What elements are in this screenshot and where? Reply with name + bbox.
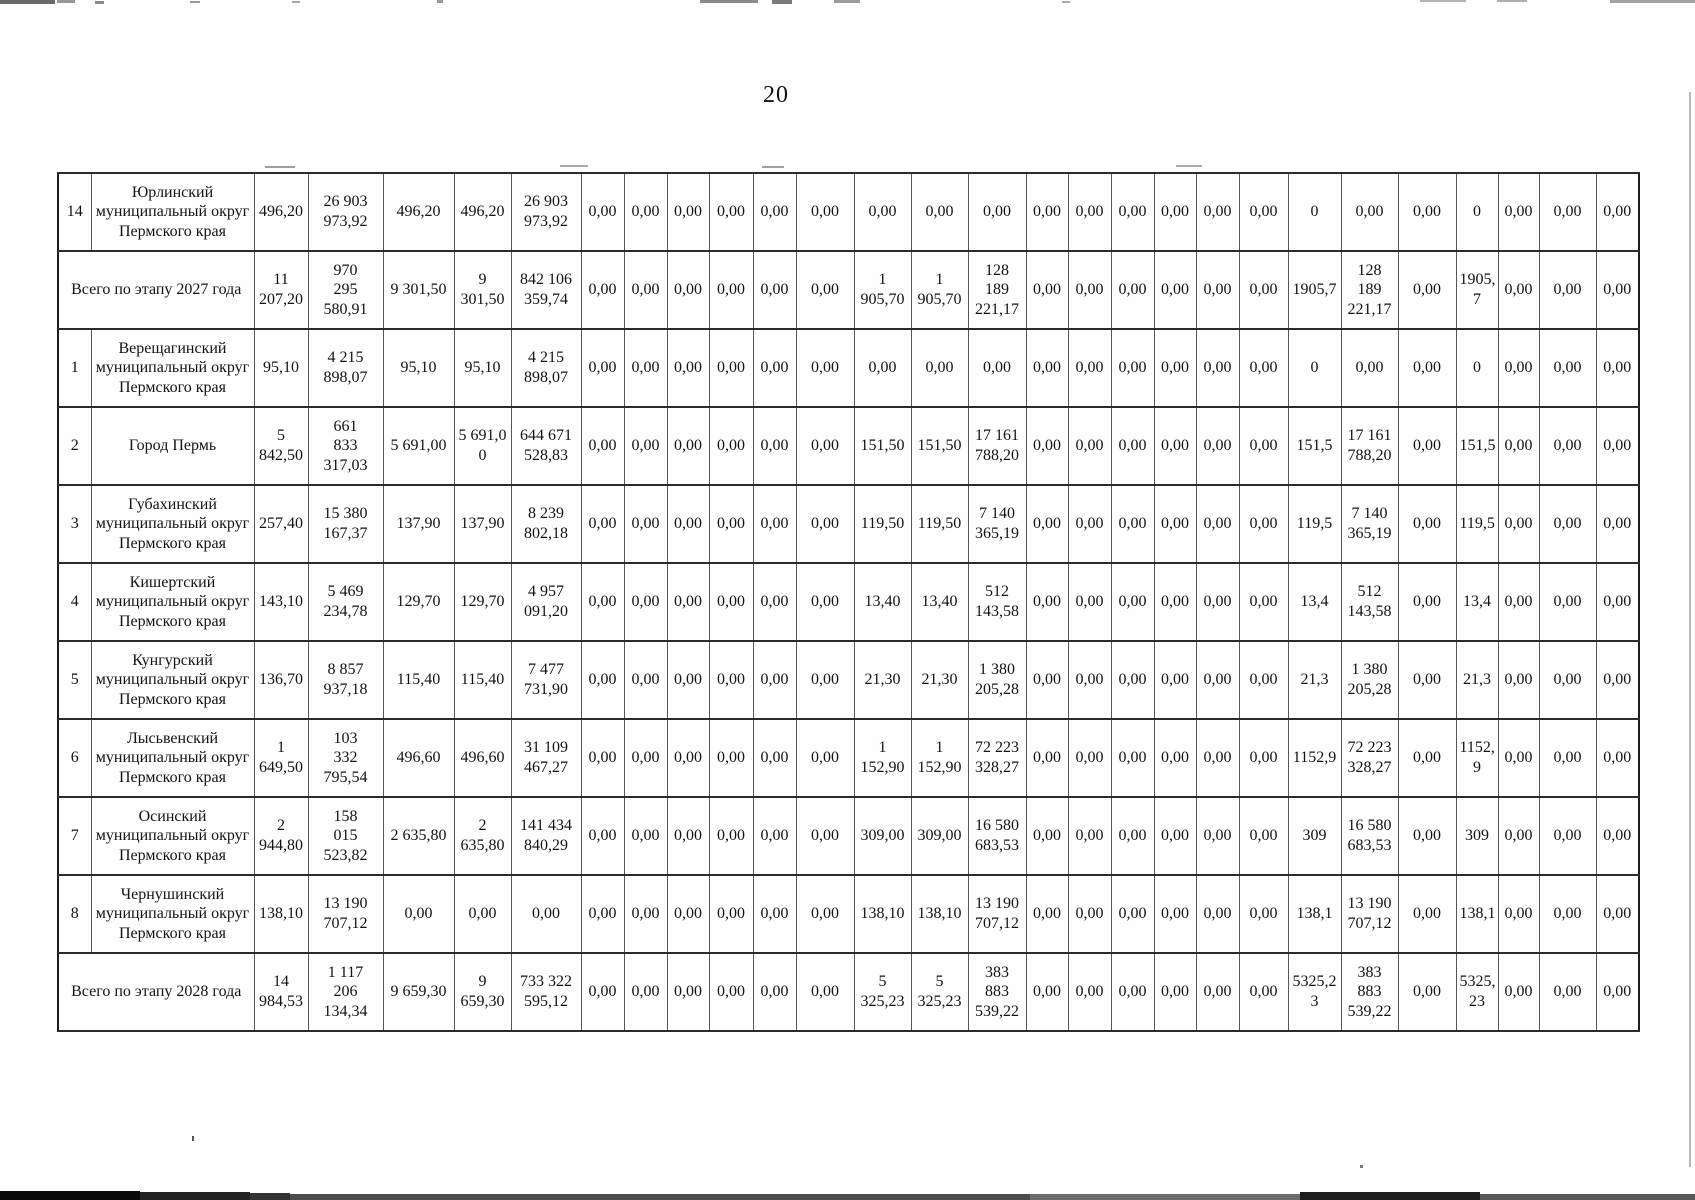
- value-cell: 11 207,20: [254, 251, 308, 329]
- value-cell: 128 189 221,17: [968, 251, 1026, 329]
- table-row: 4Кишертский муниципальный округ Пермског…: [58, 563, 1639, 641]
- value-cell: 0,00: [667, 953, 709, 1031]
- value-cell: 119,50: [854, 485, 911, 563]
- scan-artifact: [560, 165, 588, 167]
- value-cell: 309: [1288, 797, 1341, 875]
- scan-artifact: [57, 0, 75, 3]
- value-cell: 138,1: [1288, 875, 1341, 953]
- value-cell: 0,00: [709, 251, 753, 329]
- value-cell: 0,00: [1498, 485, 1539, 563]
- value-cell: 512 143,58: [968, 563, 1026, 641]
- scan-artifact: [192, 1136, 194, 1141]
- value-cell: 0,00: [709, 953, 753, 1031]
- scan-artifact: [250, 1193, 290, 1200]
- value-cell: 0,00: [1111, 251, 1154, 329]
- value-cell: 0,00: [1596, 641, 1639, 719]
- value-cell: 0,00: [1196, 329, 1239, 407]
- value-cell: 0,00: [624, 797, 667, 875]
- value-cell: 151,5: [1456, 407, 1498, 485]
- scan-artifact: [1610, 0, 1695, 3]
- table-row: 1Верещагинский муниципальный округ Пермс…: [58, 329, 1639, 407]
- value-cell: 0,00: [1498, 797, 1539, 875]
- value-cell: 0,00: [1498, 407, 1539, 485]
- value-cell: 0,00: [709, 641, 753, 719]
- scan-artifact: [1300, 1192, 1480, 1200]
- value-cell: 0,00: [581, 407, 624, 485]
- value-cell: 0,00: [796, 407, 854, 485]
- value-cell: 0,00: [753, 329, 796, 407]
- scan-artifact: [1062, 1, 1070, 3]
- scan-artifact: [1030, 1194, 1300, 1200]
- data-table: 14Юрлинский муниципальный округ Пермског…: [57, 172, 1640, 1032]
- value-cell: 0,00: [1596, 173, 1639, 251]
- value-cell: 0,00: [854, 173, 911, 251]
- value-cell: 0,00: [511, 875, 581, 953]
- value-cell: 0,00: [667, 329, 709, 407]
- value-cell: 0,00: [1068, 563, 1111, 641]
- value-cell: 309: [1456, 797, 1498, 875]
- value-cell: 13,40: [854, 563, 911, 641]
- value-cell: 0,00: [1154, 641, 1196, 719]
- value-cell: 496,60: [454, 719, 511, 797]
- value-cell: 138,10: [854, 875, 911, 953]
- value-cell: 0,00: [1068, 173, 1111, 251]
- value-cell: 0,00: [624, 173, 667, 251]
- value-cell: 0,00: [1239, 407, 1288, 485]
- value-cell: 0,00: [1196, 797, 1239, 875]
- value-cell: 1905,7: [1288, 251, 1341, 329]
- value-cell: 0,00: [1026, 953, 1068, 1031]
- value-cell: 0: [1456, 329, 1498, 407]
- value-cell: 0,00: [1596, 407, 1639, 485]
- value-cell: 0,00: [1196, 485, 1239, 563]
- value-cell: 0,00: [1068, 641, 1111, 719]
- value-cell: 0,00: [1398, 719, 1456, 797]
- value-cell: 13,4: [1288, 563, 1341, 641]
- value-cell: 95,10: [254, 329, 308, 407]
- value-cell: 0,00: [1239, 875, 1288, 953]
- value-cell: 0,00: [1539, 173, 1596, 251]
- total-label: Всего по этапу 2028 года: [58, 953, 254, 1031]
- page-number: 20: [763, 82, 789, 109]
- value-cell: 0,00: [624, 719, 667, 797]
- value-cell: 0,00: [1398, 563, 1456, 641]
- value-cell: 0,00: [1498, 563, 1539, 641]
- value-cell: 13,40: [911, 563, 968, 641]
- value-cell: 0,00: [1196, 407, 1239, 485]
- value-cell: 0,00: [581, 173, 624, 251]
- value-cell: 0,00: [1239, 251, 1288, 329]
- value-cell: 0,00: [1026, 875, 1068, 953]
- municipality-name: Город Пермь: [91, 407, 254, 485]
- scan-artifact: [290, 1194, 1030, 1200]
- value-cell: 0,00: [796, 953, 854, 1031]
- value-cell: 0,00: [1596, 251, 1639, 329]
- value-cell: 2 944,80: [254, 797, 308, 875]
- table-row: 7Осинский муниципальный округ Пермского …: [58, 797, 1639, 875]
- value-cell: 0,00: [624, 953, 667, 1031]
- value-cell: 143,10: [254, 563, 308, 641]
- value-cell: 0,00: [1539, 407, 1596, 485]
- value-cell: 0,00: [581, 329, 624, 407]
- value-cell: 95,10: [383, 329, 454, 407]
- scanned-page: 20 14Юрлинский муниципальный округ Пермс…: [0, 0, 1695, 1200]
- value-cell: 0,00: [753, 251, 796, 329]
- value-cell: 0,00: [1498, 251, 1539, 329]
- value-cell: 0,00: [796, 563, 854, 641]
- value-cell: 95,10: [454, 329, 511, 407]
- value-cell: 0,00: [1111, 719, 1154, 797]
- value-cell: 0,00: [581, 251, 624, 329]
- value-cell: 0,00: [1154, 407, 1196, 485]
- value-cell: 0,00: [1154, 251, 1196, 329]
- value-cell: 0,00: [624, 641, 667, 719]
- value-cell: 1 649,50: [254, 719, 308, 797]
- value-cell: 1 380 205,28: [1341, 641, 1398, 719]
- value-cell: 0,00: [796, 719, 854, 797]
- value-cell: 0,00: [1539, 329, 1596, 407]
- value-cell: 0,00: [1498, 953, 1539, 1031]
- value-cell: 14 984,53: [254, 953, 308, 1031]
- value-cell: 0,00: [1539, 797, 1596, 875]
- value-cell: 9 659,30: [383, 953, 454, 1031]
- row-number: 2: [58, 407, 91, 485]
- value-cell: 119,5: [1288, 485, 1341, 563]
- value-cell: 0,00: [667, 641, 709, 719]
- value-cell: 0,00: [667, 407, 709, 485]
- value-cell: 0,00: [796, 641, 854, 719]
- value-cell: 0,00: [1154, 173, 1196, 251]
- value-cell: 0,00: [1068, 407, 1111, 485]
- value-cell: 0,00: [581, 719, 624, 797]
- value-cell: 0,00: [454, 875, 511, 953]
- value-cell: 9 301,50: [454, 251, 511, 329]
- value-cell: 15 380 167,37: [308, 485, 383, 563]
- value-cell: 0,00: [753, 173, 796, 251]
- scan-artifact: [190, 1, 200, 3]
- value-cell: 0,00: [1196, 173, 1239, 251]
- value-cell: 0,00: [1196, 953, 1239, 1031]
- total-row: Всего по этапу 2028 года14 984,531 117 2…: [58, 953, 1639, 1031]
- table-row: 6Лысьвенский муниципальный округ Пермско…: [58, 719, 1639, 797]
- value-cell: 4 215 898,07: [308, 329, 383, 407]
- value-cell: 0,00: [753, 719, 796, 797]
- value-cell: 309,00: [911, 797, 968, 875]
- value-cell: 5 325,23: [911, 953, 968, 1031]
- value-cell: 0,00: [1398, 953, 1456, 1031]
- value-cell: 0,00: [1111, 953, 1154, 1031]
- value-cell: 257,40: [254, 485, 308, 563]
- value-cell: 1 117 206 134,34: [308, 953, 383, 1031]
- scan-artifact: [1497, 0, 1527, 2]
- value-cell: 0,00: [1196, 719, 1239, 797]
- value-cell: 0,00: [1026, 251, 1068, 329]
- value-cell: 0,00: [1539, 641, 1596, 719]
- value-cell: 0,00: [1239, 563, 1288, 641]
- table-row: 2Город Пермь5 842,50661 833 317,035 691,…: [58, 407, 1639, 485]
- value-cell: 0,00: [1398, 641, 1456, 719]
- municipality-name: Верещагинский муниципальный округ Пермск…: [91, 329, 254, 407]
- value-cell: 0,00: [1026, 719, 1068, 797]
- value-cell: 0,00: [1539, 485, 1596, 563]
- value-cell: 13 190 707,12: [968, 875, 1026, 953]
- value-cell: 5 691,00: [383, 407, 454, 485]
- value-cell: 0,00: [1196, 563, 1239, 641]
- value-cell: 0,00: [1068, 719, 1111, 797]
- value-cell: 0,00: [753, 641, 796, 719]
- value-cell: 0,00: [1154, 797, 1196, 875]
- value-cell: 0,00: [1068, 797, 1111, 875]
- value-cell: 5 842,50: [254, 407, 308, 485]
- value-cell: 5325,2 3: [1288, 953, 1341, 1031]
- scan-artifact: [762, 166, 784, 168]
- value-cell: 496,20: [254, 173, 308, 251]
- value-cell: 7 477 731,90: [511, 641, 581, 719]
- row-number: 5: [58, 641, 91, 719]
- value-cell: 0,00: [1498, 875, 1539, 953]
- value-cell: 0,00: [1111, 641, 1154, 719]
- value-cell: 0,00: [1239, 485, 1288, 563]
- value-cell: 0,00: [753, 563, 796, 641]
- value-cell: 9 301,50: [383, 251, 454, 329]
- value-cell: 9 659,30: [454, 953, 511, 1031]
- value-cell: 0,00: [1596, 329, 1639, 407]
- value-cell: 0,00: [667, 563, 709, 641]
- value-cell: 8 857 937,18: [308, 641, 383, 719]
- total-row: Всего по этапу 2027 года11 207,20970 295…: [58, 251, 1639, 329]
- value-cell: 0,00: [854, 329, 911, 407]
- table-row: 3Губахинский муниципальный округ Пермско…: [58, 485, 1639, 563]
- value-cell: 0,00: [1596, 875, 1639, 953]
- value-cell: 1 152,90: [911, 719, 968, 797]
- value-cell: 0,00: [1596, 953, 1639, 1031]
- value-cell: 0,00: [667, 875, 709, 953]
- value-cell: 0,00: [753, 485, 796, 563]
- value-cell: 383 883 539,22: [968, 953, 1026, 1031]
- value-cell: 0,00: [1398, 173, 1456, 251]
- scan-artifact: [0, 0, 55, 4]
- value-cell: 0,00: [1539, 563, 1596, 641]
- value-cell: 0,00: [1154, 875, 1196, 953]
- value-cell: 21,3: [1456, 641, 1498, 719]
- value-cell: 0,00: [667, 719, 709, 797]
- value-cell: 128 189 221,17: [1341, 251, 1398, 329]
- value-cell: 72 223 328,27: [968, 719, 1026, 797]
- value-cell: 119,50: [911, 485, 968, 563]
- row-number: 7: [58, 797, 91, 875]
- scan-artifact: [292, 1, 300, 3]
- value-cell: 1 152,90: [854, 719, 911, 797]
- value-cell: 0,00: [1398, 251, 1456, 329]
- value-cell: 0,00: [709, 875, 753, 953]
- value-cell: 0,00: [1539, 251, 1596, 329]
- value-cell: 4 215 898,07: [511, 329, 581, 407]
- value-cell: 0,00: [1154, 485, 1196, 563]
- value-cell: 0,00: [1068, 485, 1111, 563]
- row-number: 3: [58, 485, 91, 563]
- value-cell: 0,00: [911, 173, 968, 251]
- value-cell: 496,20: [383, 173, 454, 251]
- value-cell: 1 905,70: [911, 251, 968, 329]
- value-cell: 0,00: [753, 953, 796, 1031]
- scan-artifact: [700, 0, 758, 3]
- value-cell: 0,00: [1539, 875, 1596, 953]
- value-cell: 0,00: [1111, 407, 1154, 485]
- value-cell: 0,00: [1026, 407, 1068, 485]
- value-cell: 72 223 328,27: [1341, 719, 1398, 797]
- value-cell: 0,00: [1068, 875, 1111, 953]
- scan-artifact: [0, 1191, 140, 1200]
- scan-artifact: [772, 0, 792, 4]
- value-cell: 0: [1288, 173, 1341, 251]
- municipality-name: Губахинский муниципальный округ Пермског…: [91, 485, 254, 563]
- value-cell: 136,70: [254, 641, 308, 719]
- value-cell: 0,00: [1111, 173, 1154, 251]
- municipality-name: Осинский муниципальный округ Пермского к…: [91, 797, 254, 875]
- scan-artifact: [265, 166, 295, 168]
- value-cell: 0,00: [581, 641, 624, 719]
- value-cell: 0,00: [1341, 329, 1398, 407]
- value-cell: 2 635,80: [383, 797, 454, 875]
- value-cell: 138,10: [254, 875, 308, 953]
- scan-artifact: [95, 1, 104, 4]
- value-cell: 0,00: [1596, 797, 1639, 875]
- value-cell: 16 580 683,53: [1341, 797, 1398, 875]
- value-cell: 0,00: [1398, 797, 1456, 875]
- value-cell: 0,00: [667, 485, 709, 563]
- value-cell: 0,00: [1154, 563, 1196, 641]
- table-row: 14Юрлинский муниципальный округ Пермског…: [58, 173, 1639, 251]
- scan-artifact: [834, 0, 860, 3]
- value-cell: 644 671 528,83: [511, 407, 581, 485]
- value-cell: 13 190 707,12: [308, 875, 383, 953]
- row-number: 4: [58, 563, 91, 641]
- value-cell: 138,1: [1456, 875, 1498, 953]
- value-cell: 13 190 707,12: [1341, 875, 1398, 953]
- value-cell: 0,00: [1111, 563, 1154, 641]
- value-cell: 0,00: [1239, 953, 1288, 1031]
- value-cell: 158 015 523,82: [308, 797, 383, 875]
- value-cell: 31 109 467,27: [511, 719, 581, 797]
- value-cell: 0,00: [581, 875, 624, 953]
- scan-right-edge-line: [1689, 92, 1691, 1167]
- value-cell: 0,00: [581, 563, 624, 641]
- value-cell: 137,90: [454, 485, 511, 563]
- value-cell: 0,00: [709, 173, 753, 251]
- scan-artifact: [1176, 165, 1202, 167]
- row-number: 1: [58, 329, 91, 407]
- value-cell: 0,00: [1111, 485, 1154, 563]
- value-cell: 115,40: [454, 641, 511, 719]
- table-row: 5Кунгурский муниципальный округ Пермског…: [58, 641, 1639, 719]
- value-cell: 0,00: [1398, 485, 1456, 563]
- value-cell: 16 580 683,53: [968, 797, 1026, 875]
- table-row: 8Чернушинский муниципальный округ Пермск…: [58, 875, 1639, 953]
- scan-artifact: [1480, 1194, 1695, 1200]
- value-cell: 0,00: [624, 875, 667, 953]
- value-cell: 5 691,0 0: [454, 407, 511, 485]
- value-cell: 0,00: [624, 251, 667, 329]
- value-cell: 1152,9: [1288, 719, 1341, 797]
- value-cell: 0,00: [709, 407, 753, 485]
- value-cell: 0,00: [1196, 875, 1239, 953]
- value-cell: 129,70: [454, 563, 511, 641]
- value-cell: 0: [1456, 173, 1498, 251]
- municipality-name: Юрлинский муниципальный округ Пермского …: [91, 173, 254, 251]
- value-cell: 0,00: [581, 485, 624, 563]
- value-cell: 26 903 973,92: [308, 173, 383, 251]
- value-cell: 0,00: [624, 329, 667, 407]
- value-cell: 0,00: [1596, 563, 1639, 641]
- value-cell: 13,4: [1456, 563, 1498, 641]
- value-cell: 0,00: [753, 407, 796, 485]
- value-cell: 0,00: [796, 173, 854, 251]
- value-cell: 0,00: [1196, 251, 1239, 329]
- value-cell: 0,00: [1196, 641, 1239, 719]
- value-cell: 0,00: [1154, 953, 1196, 1031]
- value-cell: 0,00: [581, 797, 624, 875]
- value-cell: 151,50: [911, 407, 968, 485]
- scan-artifact: [140, 1192, 250, 1200]
- value-cell: 7 140 365,19: [968, 485, 1026, 563]
- value-cell: 842 106 359,74: [511, 251, 581, 329]
- value-cell: 151,50: [854, 407, 911, 485]
- municipality-name: Лысьвенский муниципальный округ Пермског…: [91, 719, 254, 797]
- value-cell: 0,00: [709, 719, 753, 797]
- value-cell: 0,00: [1539, 953, 1596, 1031]
- value-cell: 661 833 317,03: [308, 407, 383, 485]
- value-cell: 0,00: [1498, 641, 1539, 719]
- scan-artifact: [437, 0, 443, 3]
- value-cell: 970 295 580,91: [308, 251, 383, 329]
- value-cell: 21,3: [1288, 641, 1341, 719]
- value-cell: 0,00: [667, 251, 709, 329]
- value-cell: 0,00: [753, 875, 796, 953]
- value-cell: 0,00: [1596, 719, 1639, 797]
- value-cell: 0,00: [1111, 875, 1154, 953]
- value-cell: 0,00: [1398, 407, 1456, 485]
- value-cell: 0,00: [1111, 329, 1154, 407]
- value-cell: 0,00: [796, 329, 854, 407]
- row-number: 8: [58, 875, 91, 953]
- scan-artifact: [1360, 1165, 1363, 1168]
- value-cell: 0,00: [968, 173, 1026, 251]
- value-cell: 0,00: [1239, 719, 1288, 797]
- value-cell: 138,10: [911, 875, 968, 953]
- value-cell: 0,00: [383, 875, 454, 953]
- value-cell: 0,00: [1026, 797, 1068, 875]
- value-cell: 5 325,23: [854, 953, 911, 1031]
- value-cell: 103 332 795,54: [308, 719, 383, 797]
- value-cell: 26 903 973,92: [511, 173, 581, 251]
- value-cell: 7 140 365,19: [1341, 485, 1398, 563]
- value-cell: 512 143,58: [1341, 563, 1398, 641]
- value-cell: 0,00: [753, 797, 796, 875]
- value-cell: 0,00: [796, 251, 854, 329]
- value-cell: 309,00: [854, 797, 911, 875]
- value-cell: 0,00: [667, 173, 709, 251]
- value-cell: 0,00: [796, 797, 854, 875]
- value-cell: 0,00: [1111, 797, 1154, 875]
- value-cell: 0,00: [1539, 719, 1596, 797]
- value-cell: 0,00: [1398, 329, 1456, 407]
- value-cell: 0,00: [1026, 329, 1068, 407]
- value-cell: 8 239 802,18: [511, 485, 581, 563]
- value-cell: 137,90: [383, 485, 454, 563]
- value-cell: 0,00: [1239, 173, 1288, 251]
- value-cell: 5 469 234,78: [308, 563, 383, 641]
- value-cell: 0,00: [1154, 719, 1196, 797]
